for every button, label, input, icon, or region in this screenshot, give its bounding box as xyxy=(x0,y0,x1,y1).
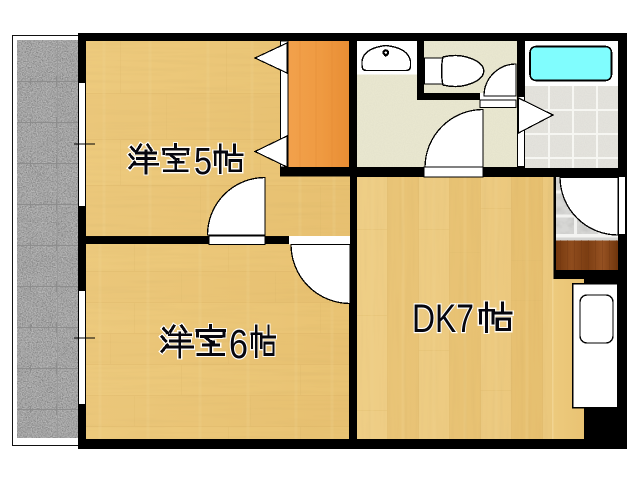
svg-text:6: 6 xyxy=(229,321,248,367)
svg-text:DK7: DK7 xyxy=(412,297,474,341)
svg-text:5: 5 xyxy=(194,141,212,183)
